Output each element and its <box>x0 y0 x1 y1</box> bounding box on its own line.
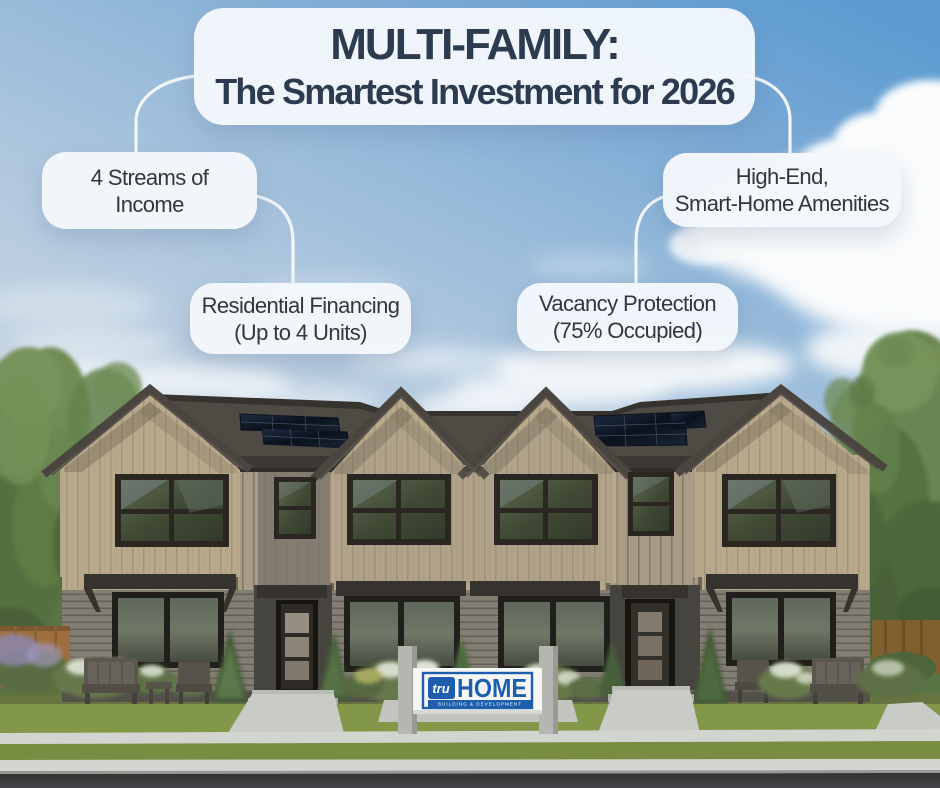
svg-text:HOME: HOME <box>457 673 527 703</box>
svg-text:tru: tru <box>432 681 449 696</box>
svg-text:BUILDING & DEVELOPMENT: BUILDING & DEVELOPMENT <box>438 702 522 707</box>
